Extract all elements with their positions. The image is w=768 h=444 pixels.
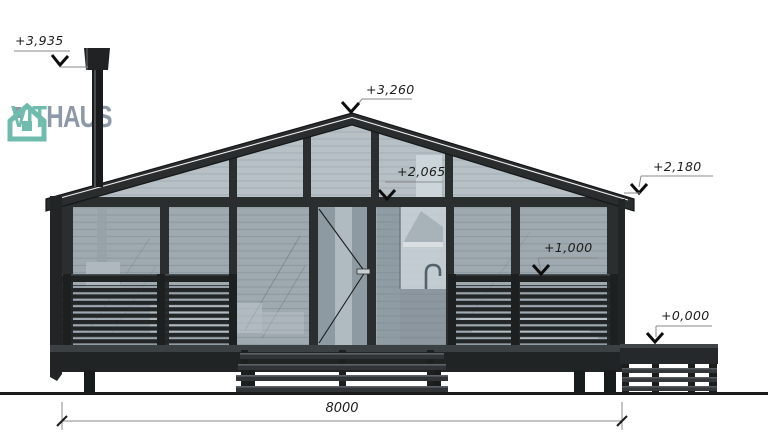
house-front-elevation bbox=[0, 0, 768, 444]
railing-left bbox=[62, 274, 237, 350]
level-annotation-chimney-top: +3,935 bbox=[15, 33, 64, 48]
level-annotation-railing-top: +1,000 bbox=[544, 240, 593, 255]
level-annotation-entry-platform: +0,000 bbox=[661, 308, 710, 323]
eave-beam bbox=[62, 197, 618, 207]
entry-door bbox=[309, 197, 376, 350]
dimension-overall-width-label: 8000 bbox=[302, 401, 382, 416]
ground-line bbox=[0, 392, 768, 395]
level-annotation-door-head: +2,065 bbox=[397, 164, 446, 179]
level-leader-eave-right bbox=[624, 176, 713, 193]
level-leader-chimney-top bbox=[14, 51, 88, 67]
elevation-drawing: VIT HAUS bbox=[0, 0, 768, 444]
level-leader-entry-platform bbox=[647, 326, 712, 342]
door-handle bbox=[357, 269, 370, 274]
entry-platform bbox=[620, 344, 718, 394]
railing-right bbox=[448, 274, 618, 350]
level-annotation-ridge: +3,260 bbox=[366, 82, 415, 97]
level-annotation-eave-right: +2,180 bbox=[653, 159, 702, 174]
chimney bbox=[84, 48, 110, 187]
level-leader-ridge bbox=[342, 99, 412, 112]
